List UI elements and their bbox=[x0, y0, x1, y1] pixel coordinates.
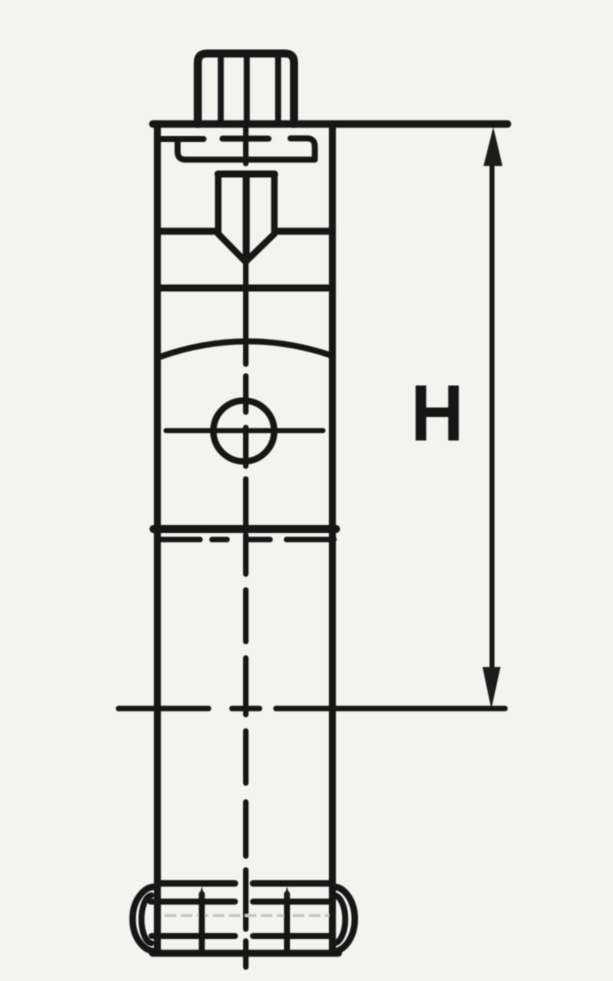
svg-text:H: H bbox=[411, 369, 464, 458]
